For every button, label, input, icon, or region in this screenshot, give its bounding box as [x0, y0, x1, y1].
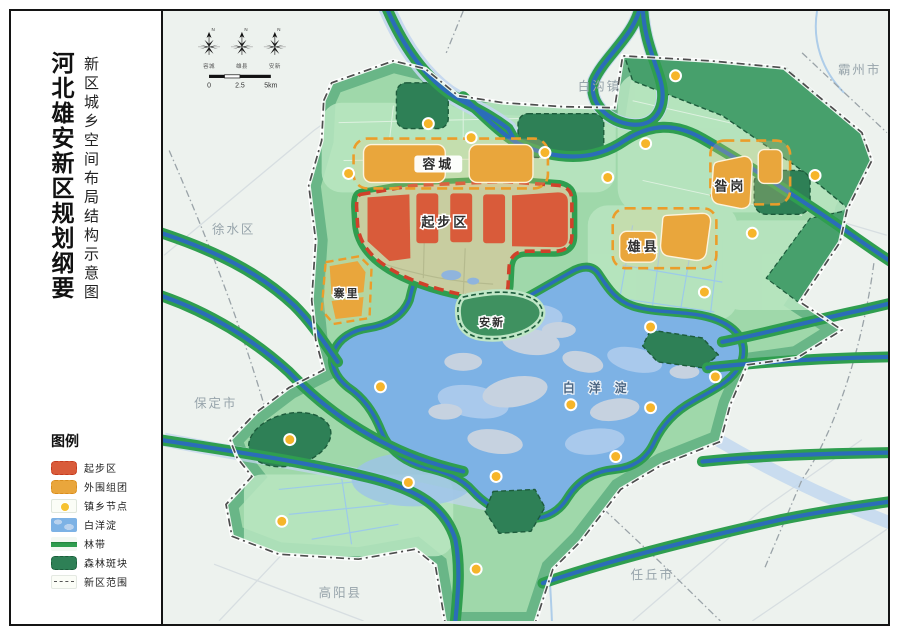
rose-label: 安新: [269, 62, 281, 70]
scale-tick-end: 5km: [264, 83, 277, 90]
xiongxian-label: 雄县: [627, 239, 660, 254]
start-area-marsh: [441, 270, 461, 280]
rose-label: 雄县: [236, 62, 248, 70]
baoding-label: 保定市: [194, 396, 237, 411]
map-canvas: 容城 昝岗 雄县 寨里: [163, 11, 888, 624]
poster-frame: 河北雄安新区规划纲要 新区城乡空间布局结构示意图 图例 起步区 外围组团 镇乡节…: [9, 9, 890, 626]
forest-patch-swatch: [51, 556, 77, 570]
rose-label: 容城: [203, 62, 215, 70]
cluster-xiongxian: 雄县: [613, 208, 717, 268]
zangang-label: 昝岗: [714, 178, 746, 193]
legend-row-belt: 林带: [51, 534, 159, 553]
poster-title: 河北雄安新区规划纲要: [49, 51, 72, 303]
legend-row-lake: 白洋淀: [51, 515, 159, 534]
legend-row-start-area: 起步区: [51, 458, 159, 477]
legend-row-patch: 森林斑块: [51, 553, 159, 572]
north-letter: N: [277, 27, 280, 32]
legend-label: 白洋淀: [84, 517, 117, 532]
start-area-swatch: [51, 461, 77, 475]
legend: 图例 起步区 外围组团 镇乡节点 白洋淀: [51, 431, 159, 591]
renqiu-label: 任丘市: [631, 567, 674, 582]
scale-tick-mid: 2.5: [235, 83, 245, 90]
qibuqu-label: 起步区: [420, 214, 469, 229]
legend-row-range: 新区范围: [51, 572, 159, 591]
zhaili-label: 寨里: [333, 286, 360, 300]
north-letter: N: [212, 27, 215, 32]
poster-subtitle: 新区城乡空间布局结构示意图: [83, 56, 98, 303]
legend-row-cluster: 外围组团: [51, 477, 159, 496]
forest-belt-swatch: [51, 537, 77, 551]
rongcheng-label: 容城: [421, 156, 454, 171]
start-area-marsh: [467, 278, 479, 285]
cluster-zangang: 昝岗: [710, 141, 790, 209]
scale-tick-0: 0: [207, 83, 211, 90]
legend-label: 森林斑块: [84, 555, 128, 570]
cluster-rongcheng: 容城: [354, 139, 548, 189]
legend-label: 镇乡节点: [84, 498, 128, 513]
area-boundary-swatch: [51, 575, 77, 589]
sidebar: 河北雄安新区规划纲要 新区城乡空间布局结构示意图 图例 起步区 外围组团 镇乡节…: [11, 11, 163, 624]
legend-label: 外围组团: [84, 479, 128, 494]
cluster-zhaili: 寨里: [322, 256, 372, 324]
title-block: 河北雄安新区规划纲要 新区城乡空间布局结构示意图: [49, 51, 98, 303]
gaoyang-label: 高阳县: [319, 585, 362, 600]
legend-title: 图例: [51, 431, 159, 451]
baiyangdian-label: 白洋淀: [563, 380, 641, 395]
legend-row-node: 镇乡节点: [51, 496, 159, 515]
poster-page: 河北雄安新区规划纲要 新区城乡空间布局结构示意图 图例 起步区 外围组团 镇乡节…: [0, 0, 899, 635]
legend-label: 起步区: [84, 460, 117, 475]
anxin-patch: 安新: [458, 292, 543, 339]
baigou-label: 白沟镇: [578, 79, 621, 94]
anxin-label: 安新: [479, 315, 505, 329]
north-letter: N: [244, 27, 247, 32]
legend-label: 林带: [84, 536, 106, 551]
legend-label: 新区范围: [84, 574, 128, 589]
lake-swatch: [51, 518, 77, 532]
xushui-label: 徐水区: [212, 221, 255, 236]
bazhou-label: 霸州市: [838, 62, 881, 77]
cluster-swatch: [51, 480, 77, 494]
planning-map-svg: 容城 昝岗 雄县 寨里: [163, 11, 888, 621]
town-node-swatch: [51, 499, 77, 513]
